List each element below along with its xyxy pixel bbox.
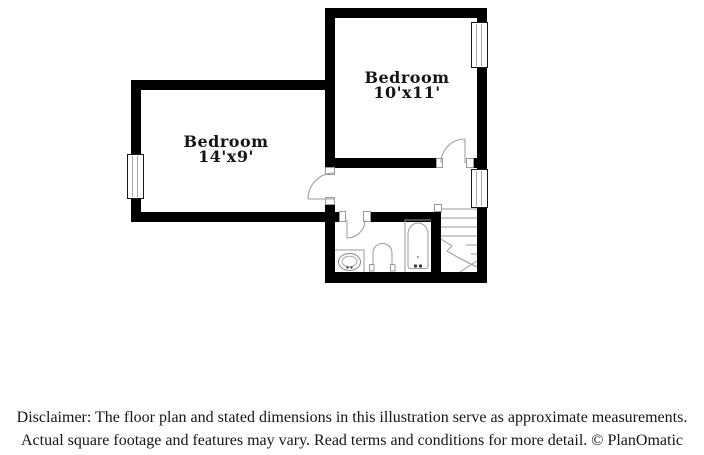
disclaimer: Disclaimer: The floor plan and stated di… [0, 406, 704, 452]
wall-bath-stairs-divider [431, 212, 441, 272]
door-arc-bedroom2 [441, 139, 465, 163]
door-jamb [325, 167, 335, 175]
bathtub [405, 220, 431, 272]
disclaimer-line1: Disclaimer: The floor plan and stated di… [0, 406, 704, 429]
door-arc-bathroom [347, 220, 365, 238]
window-icon [127, 154, 144, 199]
plan-symbols [0, 0, 704, 455]
disclaimer-line2: Actual square footage and features may v… [0, 429, 704, 452]
wall-bedroom2-top [325, 8, 487, 18]
door-arc-bedroom1 [308, 173, 334, 199]
window-icon [471, 169, 488, 208]
door-jamb [436, 158, 443, 168]
sink [339, 254, 361, 271]
wall-bath-top-right [364, 212, 441, 222]
staircase [441, 209, 477, 272]
door-jamb [325, 197, 335, 205]
door-jamb [363, 211, 371, 222]
wall-bedroom2-bottom [335, 158, 443, 168]
door-jamb [466, 158, 474, 168]
wall-bedroom1-left [131, 80, 141, 222]
toilet [370, 244, 396, 272]
wall-bottom [325, 272, 487, 283]
room-label-bedroom2: Bedroom 10'x11' [327, 70, 487, 100]
room-label-bedroom1: Bedroom 14'x9' [146, 134, 306, 164]
wall-bedroom1-top [131, 80, 335, 90]
room-dims: 10'x11' [327, 85, 487, 100]
floor-plan: Bedroom 14'x9' Bedroom 10'x11' Disclaime… [0, 0, 704, 455]
room-dims: 14'x9' [146, 149, 306, 164]
wall-bedroom1-bottom [131, 212, 335, 222]
window-icon [471, 22, 488, 68]
door-jamb [339, 211, 346, 222]
stair-jamb [434, 204, 442, 212]
vanity [335, 250, 364, 272]
